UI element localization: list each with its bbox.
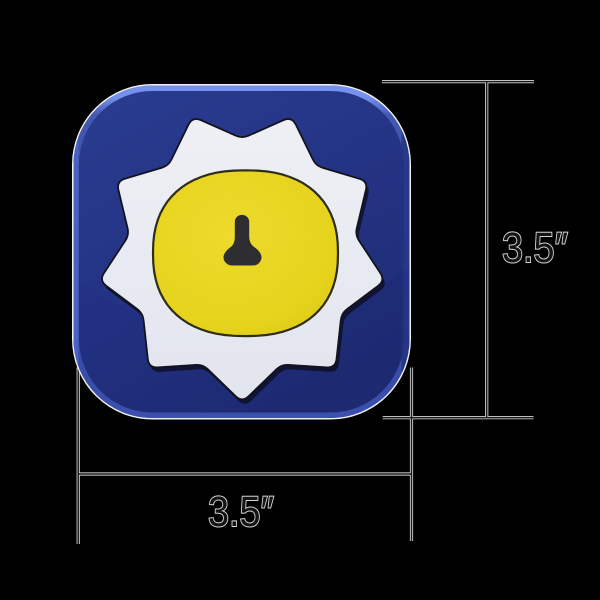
svg-text:3.5″: 3.5″: [502, 224, 568, 272]
svg-text:3.5″: 3.5″: [208, 488, 274, 536]
